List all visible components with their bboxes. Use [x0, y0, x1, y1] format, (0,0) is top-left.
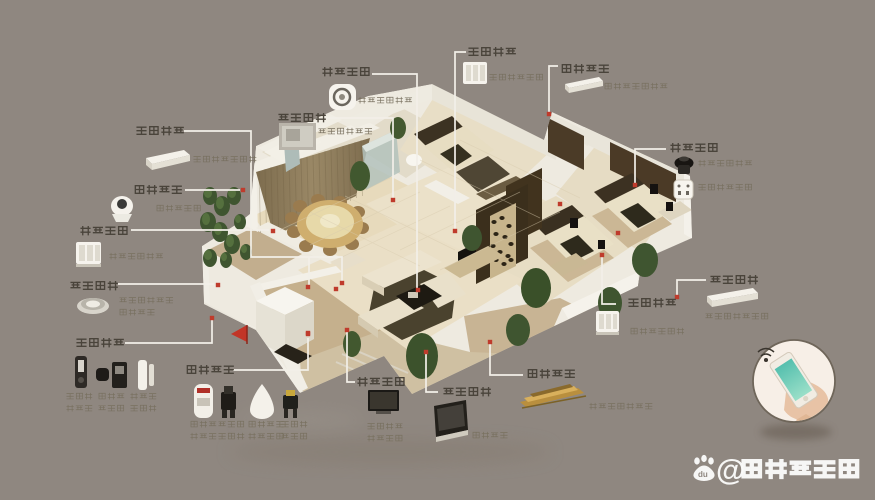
svg-text:@: @ [716, 454, 745, 487]
svg-text:du: du [698, 470, 708, 479]
